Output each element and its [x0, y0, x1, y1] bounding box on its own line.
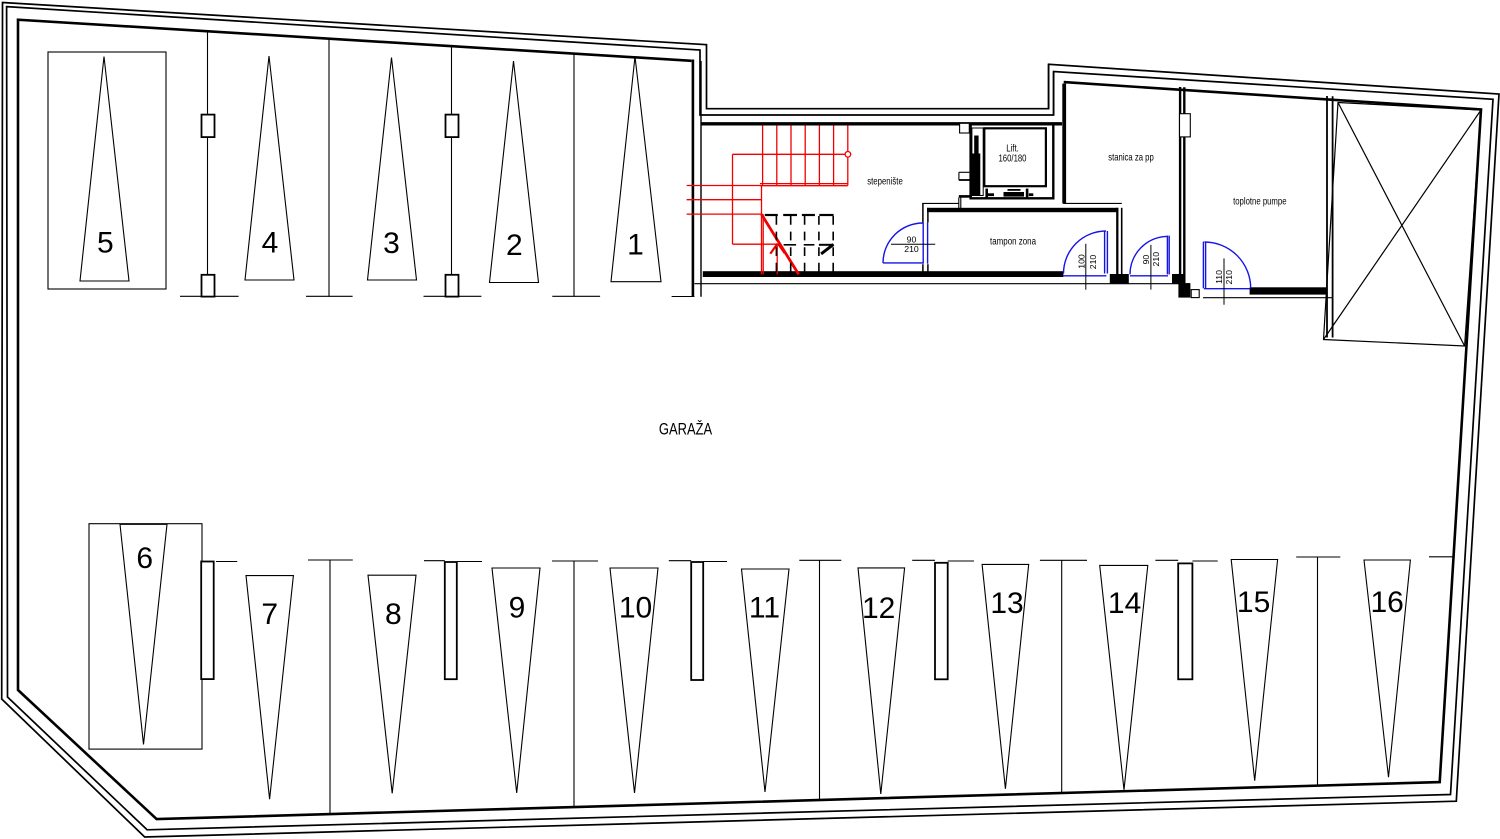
svg-text:13: 13	[990, 587, 1023, 620]
svg-text:6: 6	[136, 542, 153, 575]
svg-text:12: 12	[862, 592, 895, 625]
svg-text:1: 1	[627, 229, 644, 262]
svg-text:2: 2	[506, 229, 523, 262]
svg-text:3: 3	[383, 227, 400, 260]
svg-text:stepenište: stepenište	[867, 175, 903, 186]
svg-text:stanica za pp: stanica za pp	[1108, 151, 1154, 162]
svg-text:90: 90	[907, 234, 917, 244]
svg-text:tampon zona: tampon zona	[990, 236, 1037, 247]
svg-text:210: 210	[1151, 252, 1161, 267]
svg-text:8: 8	[385, 598, 402, 631]
svg-text:15: 15	[1237, 586, 1270, 619]
svg-text:210: 210	[904, 244, 919, 254]
svg-text:100: 100	[1076, 254, 1086, 269]
svg-text:210: 210	[1224, 270, 1234, 285]
svg-text:90: 90	[1141, 255, 1151, 265]
svg-text:110: 110	[1214, 270, 1224, 284]
svg-text:7: 7	[261, 598, 278, 631]
svg-text:11: 11	[749, 592, 780, 625]
svg-text:toplotne pumpe: toplotne pumpe	[1233, 195, 1286, 206]
svg-text:GARAŽA: GARAŽA	[659, 420, 712, 439]
svg-text:160/180: 160/180	[999, 153, 1027, 164]
svg-text:16: 16	[1371, 586, 1404, 619]
svg-text:14: 14	[1108, 587, 1141, 620]
svg-text:5: 5	[97, 227, 114, 260]
svg-text:210: 210	[1088, 255, 1098, 270]
svg-text:4: 4	[262, 226, 279, 259]
svg-text:10: 10	[619, 592, 652, 625]
svg-text:9: 9	[509, 592, 526, 625]
